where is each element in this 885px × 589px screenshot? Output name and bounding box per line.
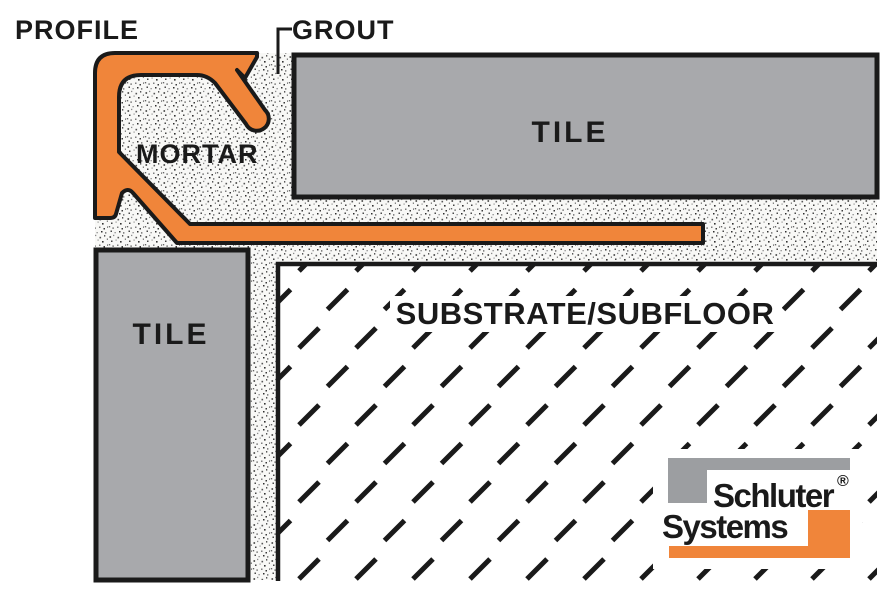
mortar-behind-left-tile bbox=[248, 250, 278, 580]
label-grout: GROUT bbox=[292, 15, 395, 45]
label-profile: PROFILE bbox=[15, 15, 139, 45]
logo-word-systems: Systems bbox=[662, 508, 787, 545]
tile-left bbox=[96, 250, 248, 580]
label-mortar: MORTAR bbox=[136, 139, 258, 169]
schluter-logo: Schluter ® Systems bbox=[653, 449, 862, 569]
tile-edge-profile-diagram: PROFILE GROUT MORTAR TILE TILE SUBSTRATE… bbox=[0, 0, 885, 589]
label-tile-top: TILE bbox=[532, 116, 609, 149]
label-substrate: SUBSTRATE/SUBFLOOR bbox=[396, 296, 775, 331]
label-tile-left: TILE bbox=[133, 318, 210, 351]
logo-registered-mark: ® bbox=[837, 473, 849, 490]
